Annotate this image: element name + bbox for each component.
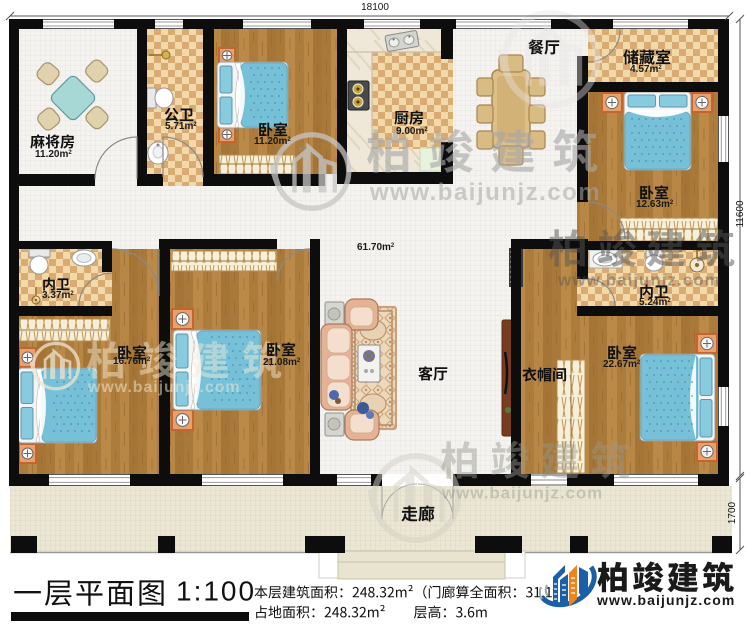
svg-text:3.37m2: 3.37m2 (42, 290, 74, 301)
svg-text:5.24m2: 5.24m2 (639, 297, 671, 308)
svg-text:5.71m2: 5.71m2 (165, 121, 197, 132)
svg-text:www.baijunjz.com: www.baijunjz.com (369, 179, 601, 206)
svg-text:1:100: 1:100 (176, 575, 256, 606)
svg-text:11.20m2: 11.20m2 (35, 149, 72, 160)
svg-text:www.baijunjz.com: www.baijunjz.com (596, 592, 735, 608)
svg-text:16.76m2: 16.76m2 (113, 356, 151, 367)
svg-text:www.baijunjz.com: www.baijunjz.com (441, 484, 603, 503)
svg-text:11600: 11600 (735, 200, 746, 228)
svg-text:11.20m2: 11.20m2 (254, 136, 291, 147)
svg-text:www.baijunjz.com: www.baijunjz.com (87, 379, 241, 396)
svg-text:21.08m2: 21.08m2 (263, 357, 301, 368)
svg-text:61.70m2: 61.70m2 (357, 242, 395, 253)
svg-text:1700: 1700 (727, 501, 738, 524)
svg-text:4.57m2: 4.57m2 (630, 64, 662, 75)
svg-text:22.67m2: 22.67m2 (603, 359, 641, 370)
svg-text:18100: 18100 (361, 2, 389, 13)
svg-text:9.00m2: 9.00m2 (396, 126, 428, 137)
svg-text:12.63m2: 12.63m2 (636, 199, 674, 210)
svg-text:www.baijunjz.com: www.baijunjz.com (557, 271, 721, 290)
